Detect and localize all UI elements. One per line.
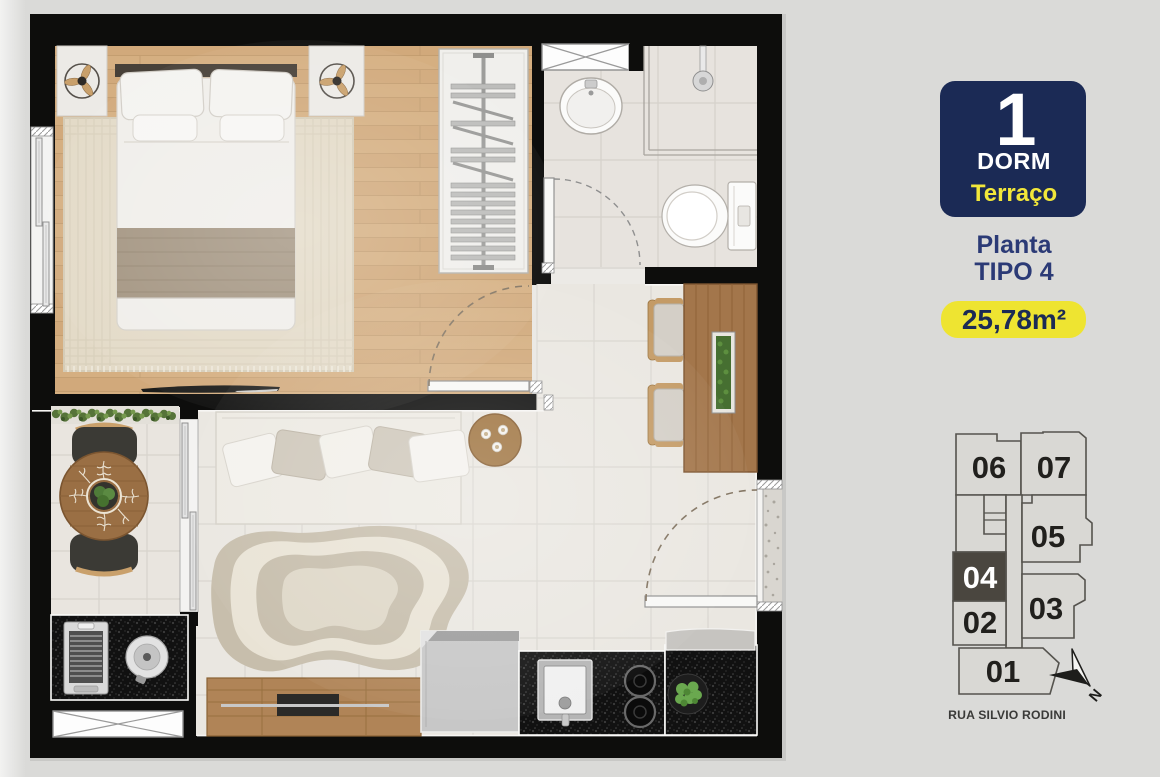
svg-text:Terraço: Terraço	[971, 180, 1057, 207]
svg-text:03: 03	[1029, 591, 1063, 626]
svg-text:Planta: Planta	[976, 231, 1052, 259]
svg-text:05: 05	[1031, 519, 1065, 554]
svg-text:07: 07	[1037, 450, 1071, 485]
svg-text:01: 01	[986, 654, 1020, 689]
svg-text:25,78m²: 25,78m²	[962, 304, 1066, 335]
svg-text:04: 04	[963, 560, 998, 595]
svg-text:02: 02	[963, 605, 997, 640]
svg-text:DORM: DORM	[977, 148, 1051, 174]
svg-text:RUA SILVIO RODINI: RUA SILVIO RODINI	[948, 708, 1066, 722]
svg-text:TIPO 4: TIPO 4	[974, 258, 1053, 286]
svg-text:06: 06	[972, 450, 1006, 485]
